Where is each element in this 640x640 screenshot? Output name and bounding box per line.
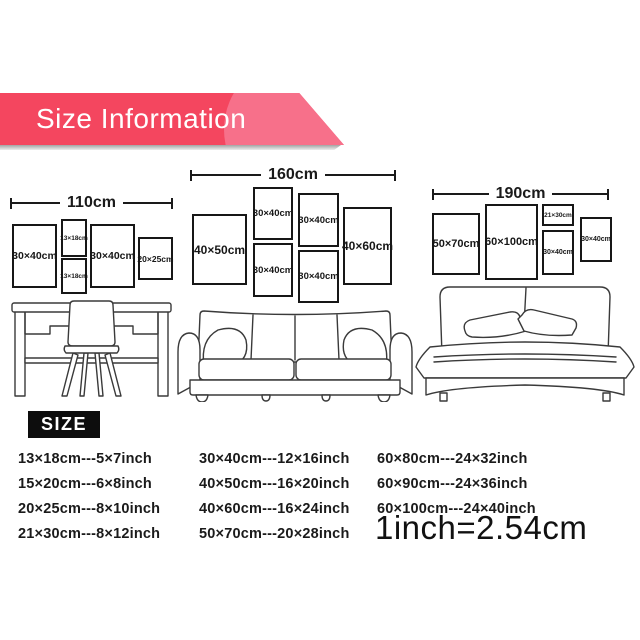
frame-size-label: 30×40cm: [12, 250, 57, 262]
size-conversion-row: 60×80cm---24×32inch: [377, 447, 536, 472]
frame-size-label: 30×40cm: [253, 208, 293, 219]
frame-size-label: 30×40cm: [298, 215, 338, 226]
size-heading: SIZE: [28, 411, 100, 438]
page-title: Size Information: [36, 93, 246, 145]
frame-size-label: 30×40cm: [298, 271, 338, 282]
dimension-line-190cm: 190cm: [432, 188, 609, 200]
frame-30x40cm: 30×40cm: [298, 193, 339, 247]
frame-13x18cm: 13×18cm: [61, 219, 87, 257]
size-conversion-row: 21×30cm---8×12inch: [18, 522, 160, 547]
frame-30x40cm: 30×40cm: [12, 224, 57, 288]
size-conversion-row: 30×40cm---12×16inch: [199, 447, 350, 472]
frame-size-label: 40×50cm: [194, 243, 245, 257]
dimension-line-160cm: 160cm: [190, 169, 396, 181]
frame-20x25cm: 20×25cm: [138, 237, 173, 280]
size-conversion-row: 15×20cm---6×8inch: [18, 472, 160, 497]
dimension-line-110cm: 110cm: [10, 197, 173, 209]
dimension-label: 110cm: [60, 197, 123, 209]
size-conversion-row: 50×70cm---20×28inch: [199, 522, 350, 547]
size-conversion-row: 40×60cm---16×24inch: [199, 497, 350, 522]
dimension-line: [325, 174, 394, 176]
frame-30x40cm: 30×40cm: [253, 243, 293, 297]
size-information-infographic: Size Information 110cm 30×40cm 13×18cm 1…: [0, 0, 640, 640]
frame-30x40cm: 30×40cm: [253, 187, 293, 240]
dimension-line: [434, 193, 489, 195]
banner-ribbon: Size Information: [0, 93, 344, 145]
frame-size-label: 13×18cm: [60, 235, 88, 242]
frame-30x40cm: 30×40cm: [580, 217, 612, 262]
frame-50x70cm: 50×70cm: [432, 213, 480, 275]
inch-conversion-note: 1inch=2.54cm: [375, 509, 587, 547]
dimension-line: [192, 174, 261, 176]
frame-size-label: 30×40cm: [581, 236, 611, 243]
size-conversion-row: 40×50cm---16×20inch: [199, 472, 350, 497]
size-table-column-2: 30×40cm---12×16inch 40×50cm---16×20inch …: [199, 447, 350, 547]
size-table-column-1: 13×18cm---5×7inch 15×20cm---6×8inch 20×2…: [18, 447, 160, 547]
bed-illustration: [410, 281, 640, 403]
frame-size-label: 40×60cm: [342, 239, 393, 253]
size-conversion-row: 20×25cm---8×10inch: [18, 497, 160, 522]
size-conversion-row: 60×90cm---24×36inch: [377, 472, 536, 497]
size-conversion-row: 13×18cm---5×7inch: [18, 447, 160, 472]
frame-size-label: 20×25cm: [137, 254, 173, 264]
frame-size-label: 30×40cm: [543, 249, 573, 256]
frame-13x18cm: 13×18cm: [61, 258, 87, 294]
ribbon-shadow: [0, 145, 341, 150]
frame-40x60cm: 40×60cm: [343, 207, 392, 285]
dimension-tick: [607, 189, 609, 200]
desk-illustration: [10, 298, 173, 400]
frame-size-label: 21×30cm: [544, 212, 572, 219]
size-heading-label: SIZE: [41, 414, 87, 435]
dimension-line: [552, 193, 607, 195]
sofa-illustration: [176, 302, 414, 402]
dimension-tick: [171, 198, 173, 209]
dimension-line: [123, 202, 171, 204]
frame-size-label: 50×70cm: [433, 238, 480, 250]
frame-60x100cm: 60×100cm: [485, 204, 538, 280]
frame-30x40cm: 30×40cm: [542, 230, 574, 275]
frame-size-label: 60×100cm: [485, 236, 538, 248]
frame-21x30cm: 21×30cm: [542, 204, 574, 226]
dimension-label: 160cm: [261, 169, 325, 181]
frame-size-label: 30×40cm: [253, 265, 293, 276]
frame-40x50cm: 40×50cm: [192, 214, 247, 285]
dimension-tick: [394, 170, 396, 181]
frame-size-label: 30×40cm: [90, 250, 135, 262]
frame-30x40cm: 30×40cm: [298, 250, 339, 303]
dimension-label: 190cm: [489, 188, 553, 200]
frame-30x40cm: 30×40cm: [90, 224, 135, 288]
dimension-line: [12, 202, 60, 204]
frame-size-label: 13×18cm: [60, 273, 88, 280]
